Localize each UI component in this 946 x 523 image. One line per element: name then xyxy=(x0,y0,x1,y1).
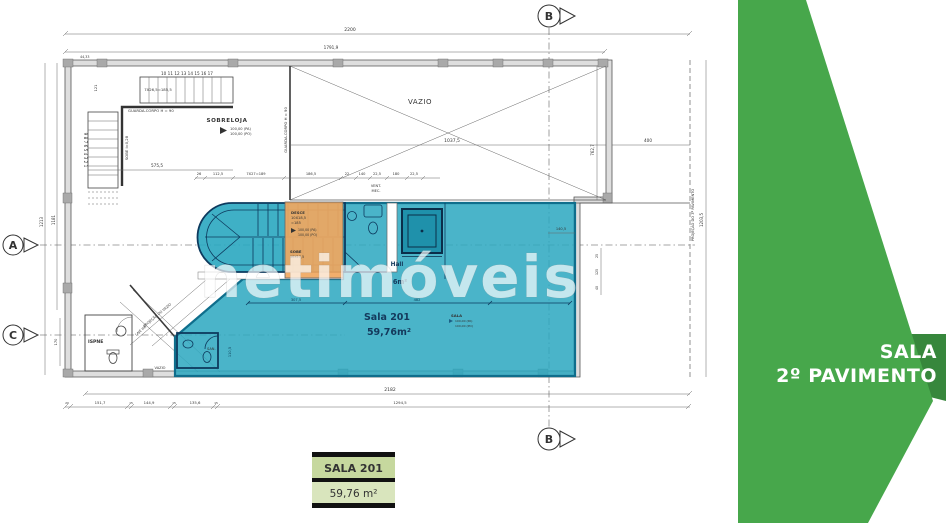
area-label-value: 59,76 m² xyxy=(330,488,378,500)
side-panel: SALA 2º PAVIMENTO xyxy=(738,0,946,523)
vazio-cross xyxy=(290,66,606,200)
vent-mec-line1: VENT. xyxy=(371,184,381,188)
left-dims: 1213 1181 xyxy=(39,63,57,375)
marker-B-top-letter: B xyxy=(545,10,553,23)
stair-level-po: 100,00 (PO) xyxy=(298,233,317,237)
marker-A: A xyxy=(3,235,38,255)
projecao-vazio-label: PROJEÇÃO DO VAZIO xyxy=(142,301,173,328)
floor-plan-listing-image: VAZIO 1037,5 GUARDA-CORPO H = 90 10 11 1… xyxy=(0,0,946,523)
dim-762: 762,7 xyxy=(590,144,595,156)
dim-400: 400 xyxy=(644,138,652,143)
dim-112: 112,5 xyxy=(213,172,223,176)
dim-7x27: 7X27=189 xyxy=(246,172,266,176)
sala-level-pa: 100,00 (PA) xyxy=(455,319,472,323)
marker-B-bottom-letter: B xyxy=(545,433,553,446)
vazio-area: VAZIO 1037,5 GUARDA-CORPO H = 90 xyxy=(283,66,606,200)
guarda-corpo-stair-label: GUARDA-CORPO H = 90 xyxy=(128,108,174,113)
panel-title-pavimento: 2º PAVIMENTO xyxy=(776,365,937,387)
dim-140: 140 xyxy=(359,172,367,176)
dim-15c: 15 xyxy=(214,401,218,405)
panel-title-sala: SALA xyxy=(880,341,937,363)
area-label-box: SALA 201 59,76 m² xyxy=(312,452,395,508)
top-dims: 2200 1791,9 44,33 xyxy=(63,27,692,59)
dim-1203: 1203,5 xyxy=(699,213,704,227)
marker-B-bottom: B xyxy=(538,428,575,450)
mid-dims-row: 26 112,5 7X27=189 186,5 22 140 22,5 180 … xyxy=(194,172,440,193)
ispne-label: ISPNE xyxy=(88,339,103,345)
dim-225a: 22,5 xyxy=(373,172,381,176)
stair-treads-side xyxy=(88,121,118,175)
dim-135: 135,6 xyxy=(190,400,201,405)
dim-144: 144,9 xyxy=(144,400,155,405)
vazio-label: VAZIO xyxy=(408,98,432,106)
stair-step-numbers-top: 10 11 12 13 14 15 16 17 xyxy=(161,71,213,76)
stair-level-pa: 100,00 (PA) xyxy=(298,228,317,232)
dim-121: 121 xyxy=(94,85,98,92)
marker-C-letter: C xyxy=(9,329,17,342)
marker-B-top: B xyxy=(538,5,575,27)
dim-151: 151,7 xyxy=(95,400,106,405)
dim-180: 180 xyxy=(393,172,401,176)
sobreloja-group: SOBRELOJA 100,00 (PA) 100,00 (PO) xyxy=(206,118,252,136)
dim-1791: 1791,9 xyxy=(324,45,339,50)
dim-1213: 1213 xyxy=(39,216,44,227)
bottom-dims: 2182 20 151,7 15 144,9 15 135,6 15 1294,… xyxy=(63,387,692,409)
desce-line1: DESCE xyxy=(291,210,305,215)
stair-dashed-continuation xyxy=(88,192,118,204)
dim-15b: 15 xyxy=(172,401,176,405)
dim-575: 575,5 xyxy=(151,163,163,168)
sala-201-label: Sala 201 xyxy=(364,312,410,323)
san-label: SAN. xyxy=(207,347,216,351)
dim-vazio-width: 1037,5 xyxy=(444,138,460,144)
dim-1294: 1294,5 xyxy=(393,400,407,405)
dim-2200: 2200 xyxy=(344,27,356,33)
dim-170: 170 xyxy=(54,338,58,346)
marker-C: C xyxy=(3,325,38,345)
dim-225b: 22,5 xyxy=(410,172,418,176)
door-arc xyxy=(117,317,132,332)
dim-1181: 1181 xyxy=(51,214,56,225)
sobreloja-label: SOBRELOJA xyxy=(206,118,247,124)
vazio-small-label: VAZIO xyxy=(154,366,165,370)
dim-25: 25 xyxy=(595,254,599,258)
dim-186: 186,5 xyxy=(306,172,316,176)
dim-125: 125 xyxy=(595,269,599,275)
dim-20: 20 xyxy=(65,401,69,405)
vent-mec-line2: MEC. xyxy=(371,189,380,193)
projecao-pavimento-label: PROJEÇÃO DO 3º PAVIMENTO xyxy=(690,189,695,241)
dim-2182: 2182 xyxy=(384,387,396,393)
dim-4433: 44,33 xyxy=(80,55,89,59)
dim-22: 22 xyxy=(345,172,350,176)
dim-15a: 15 xyxy=(129,401,133,405)
area-label-title: SALA 201 xyxy=(324,462,383,475)
staircase-upper: 10 11 12 13 14 15 16 17 9 8 7 6 5 4 3 2 … xyxy=(83,71,233,204)
desce-line2: 10X18,5 xyxy=(291,216,306,220)
netimoveis-watermark: netimóveis xyxy=(200,243,580,311)
desce-line3: =185 xyxy=(291,221,301,225)
guarda-corpo-vazio-label: GUARDA-CORPO H = 90 xyxy=(283,107,288,153)
dim-26: 26 xyxy=(197,172,202,176)
sala-small-label: SALA xyxy=(451,313,462,318)
sala-201-area-label: 59,76m² xyxy=(367,327,411,338)
sala-level-po: 100,00 (PO) xyxy=(455,324,473,328)
green-wedge xyxy=(738,0,933,523)
dim-140-5: 140,5 xyxy=(556,227,566,231)
stair-run-note: 7X26,5=185,5 xyxy=(144,87,172,92)
floor-plan-canvas: VAZIO 1037,5 GUARDA-CORPO H = 90 10 11 1… xyxy=(0,0,946,523)
dim-40: 40 xyxy=(595,286,599,290)
sobreloja-level-pa: 100,00 (PA) xyxy=(230,127,252,131)
level-flag-icon xyxy=(220,127,227,134)
stair-step-numbers-side: 9 8 7 6 5 4 3 2 1 xyxy=(83,133,88,168)
sobreloja-level-po: 100,00 (PO) xyxy=(230,132,252,136)
stair-sobe-note: SOBE i=0,28 xyxy=(124,135,129,160)
dim-110: 110,5 xyxy=(228,347,232,357)
marker-A-letter: A xyxy=(9,239,18,252)
